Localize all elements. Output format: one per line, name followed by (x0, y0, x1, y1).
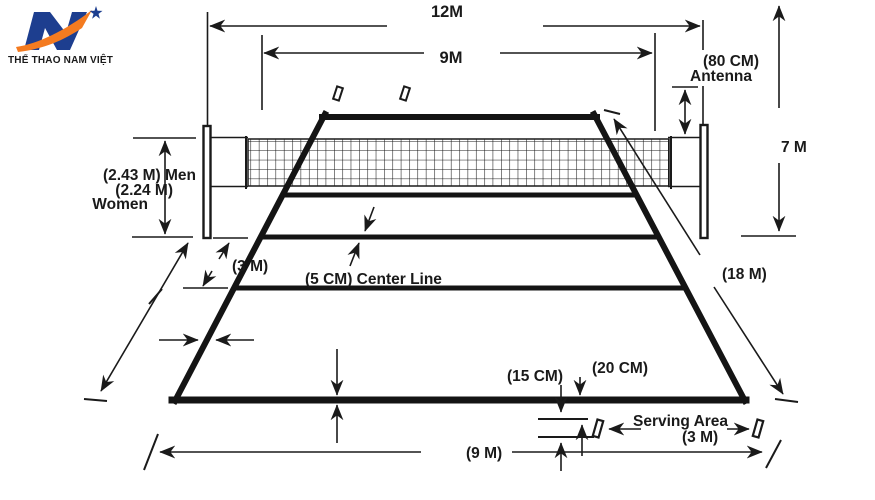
antenna-mark-right (400, 86, 410, 100)
arrow-3m-up (219, 243, 229, 259)
arrow-centerline-up (350, 243, 359, 266)
dim-18m-lower (714, 287, 783, 394)
label-serving-area-width: (3 M) (682, 429, 718, 446)
tick-18m-top (604, 110, 620, 114)
label-half-court-length: (9 M) (466, 445, 502, 462)
site-logo: THỂ THAO NAM VIỆT (8, 6, 113, 66)
label-net-height-women: Women (92, 196, 148, 213)
diagram-canvas: THỂ THAO NAM VIỆT (0, 0, 875, 500)
label-total-width: 12M (431, 3, 463, 21)
label-center-line: (5 CM) Center Line (305, 271, 442, 288)
slash-9m-left (144, 434, 158, 470)
label-antenna: Antenna (690, 68, 752, 85)
arrow-centerline-down (365, 207, 374, 231)
right-post (701, 125, 708, 238)
volleyball-court-diagram: THỂ THAO NAM VIỆT (0, 0, 875, 500)
dim-left-diagonal (101, 243, 188, 391)
arrow-3m-down (203, 271, 212, 286)
serving-mark-left (593, 420, 603, 438)
slash-9m-right (766, 440, 781, 468)
label-court-length: (18 M) (722, 266, 767, 283)
label-serving-area: Serving Area (633, 413, 728, 430)
antenna-top-marks (333, 86, 410, 100)
label-serving-mark-offset: (20 CM) (592, 360, 648, 377)
label-attack-distance: (3 M) (232, 258, 268, 275)
slash-attack-left (149, 289, 162, 304)
label-court-width: 9M (440, 49, 463, 67)
logo-text: THỂ THAO NAM VIỆT (8, 53, 113, 66)
label-free-height: 7 M (781, 139, 807, 156)
tick-left-diagonal-bottom (84, 399, 107, 401)
antenna-mark-left (333, 86, 343, 100)
logo-star-icon (90, 6, 103, 19)
left-post (204, 126, 211, 238)
label-serving-mark-length: (15 CM) (507, 368, 563, 385)
serving-mark-right (753, 420, 763, 438)
tick-18m-bottom (775, 399, 798, 402)
